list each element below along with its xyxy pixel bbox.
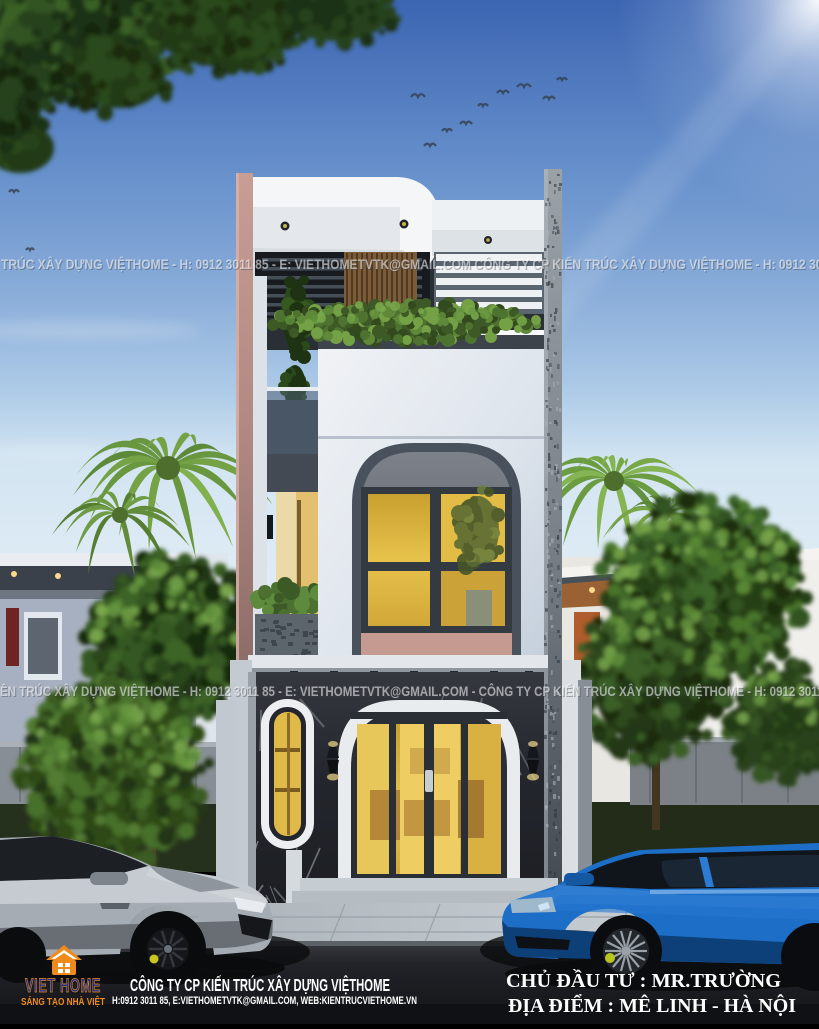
svg-text:ÊN TRÚC XÂY DỰNG VIỆTHOME -: ÊN TRÚC XÂY DỰNG VIỆTHOME - H: 0912 3011… bbox=[0, 682, 819, 699]
svg-text:TRÚC XÂY DỰNG VIỆTHOME - H:: TRÚC XÂY DỰNG VIỆTHOME - H: 0912 3011 85… bbox=[1, 255, 819, 272]
svg-text:CÔNG TY CP KIẾN TRÚC XÂY DỰNG: CÔNG TY CP KIẾN TRÚC XÂY DỰNG VIỆTHOME bbox=[130, 974, 390, 995]
svg-text:ĐỊA ĐIỂM : MÊ LINH - HÀ NỘI: ĐỊA ĐIỂM : MÊ LINH - HÀ NỘI bbox=[508, 993, 796, 1017]
svg-text:CHỦ ĐẦU TƯ : MR.TRƯỜNG: CHỦ ĐẦU TƯ : MR.TRƯỜNG bbox=[506, 968, 781, 992]
svg-text:SÁNG TẠO NHÀ VIỆT: SÁNG TẠO NHÀ VIỆT bbox=[21, 995, 105, 1008]
svg-text:H:0912 3011 85, E:VIETHOMETVTK: H:0912 3011 85, E:VIETHOMETVTK@GMAIL.COM… bbox=[112, 995, 417, 1007]
svg-text:VIET HOME: VIET HOME bbox=[25, 976, 101, 997]
